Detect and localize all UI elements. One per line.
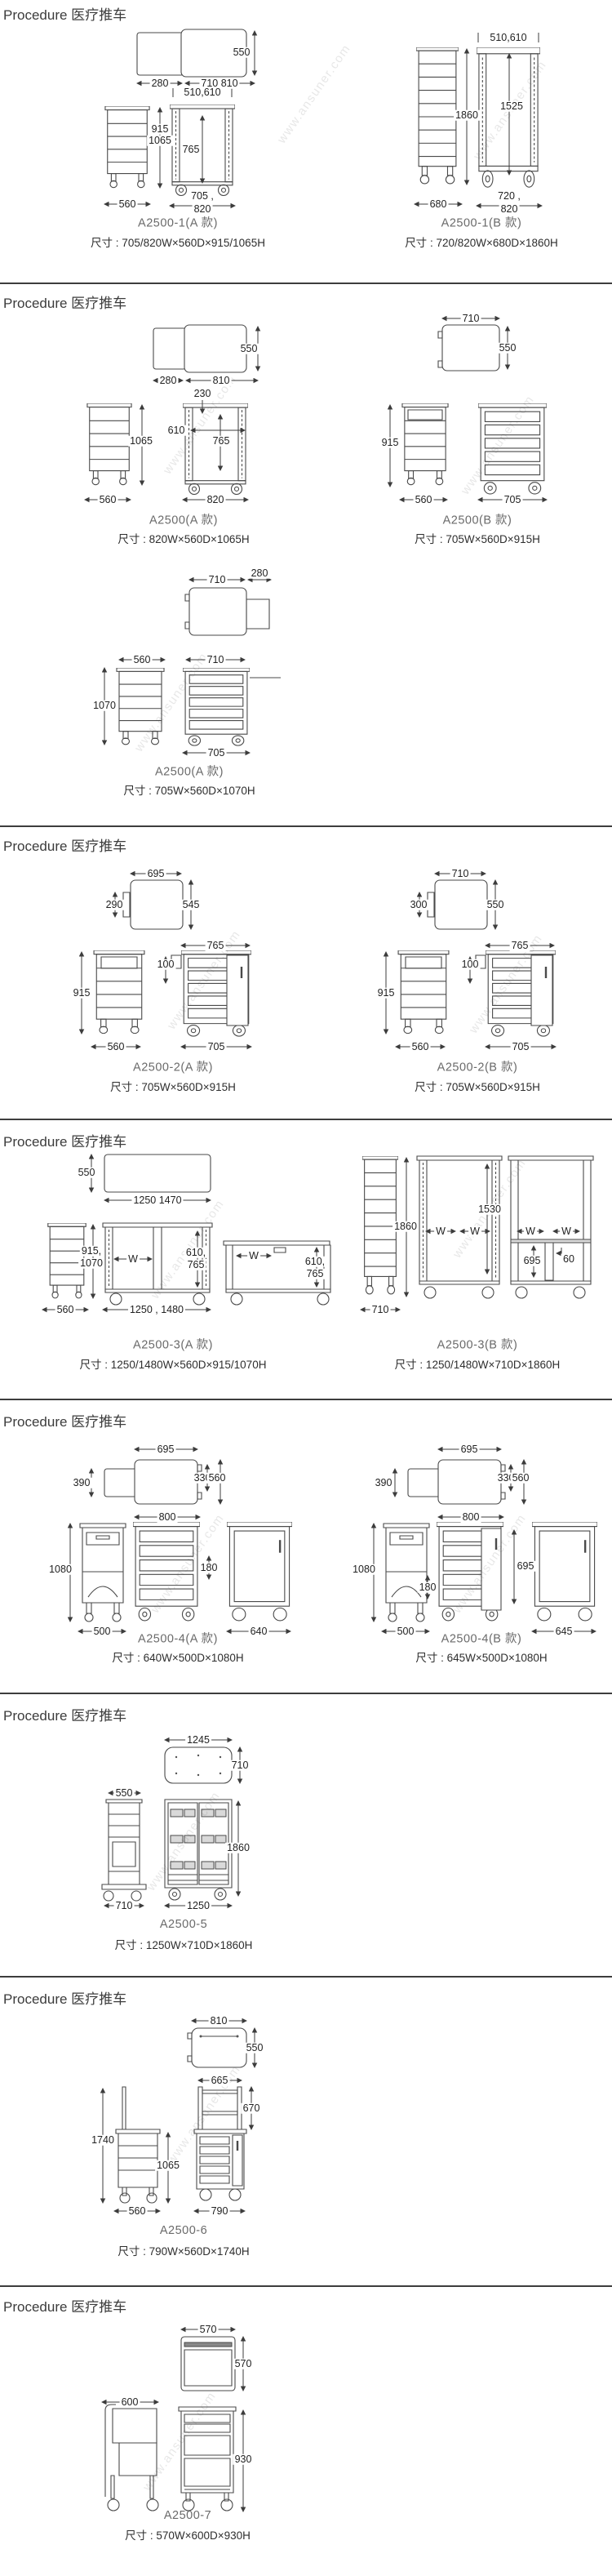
size-label: 尺寸 : 705W×560D×915H — [415, 530, 540, 546]
model-name: A2500-6 — [160, 2224, 207, 2237]
section-header: Procedure 医疗推车 — [3, 3, 126, 24]
dim-label: 560 — [98, 495, 118, 505]
dim-label: 570 — [198, 2325, 219, 2335]
figure-a2500-6 — [103, 2021, 255, 2211]
dim-label: 510,610 — [182, 87, 222, 98]
dim-label: W — [126, 1254, 140, 1265]
dim-label: 550 — [486, 900, 506, 910]
dim-label: 820 — [193, 204, 213, 215]
dim-label: 695 — [146, 869, 166, 879]
dim-label: 765 — [186, 1260, 206, 1270]
dim-label: 765 — [305, 1269, 326, 1279]
dim-label: 510,610 — [488, 33, 528, 43]
dim-label: 1250 , 1480 — [128, 1305, 185, 1315]
dim-label: 710 — [230, 1760, 251, 1771]
dim-label: 550 — [77, 1168, 97, 1178]
dim-label: 915 — [150, 124, 171, 135]
dim-label: 390 — [374, 1478, 394, 1488]
dim-label: 640 — [249, 1626, 269, 1637]
dim-label: W — [560, 1226, 573, 1237]
dim-label: 695 — [156, 1444, 176, 1455]
dim-label: 560 — [127, 2206, 148, 2217]
dim-label: 560 — [207, 1473, 228, 1484]
dim-label: 570 — [233, 2359, 254, 2369]
size-label: 尺寸 : 705/820W×560D×915/1065H — [91, 234, 265, 250]
section-header: Procedure 医疗推车 — [3, 291, 126, 312]
model-name: A2500-3(B 款) — [437, 1336, 518, 1353]
model-name: A2500-3(A 款) — [133, 1336, 213, 1353]
dim-label: W — [247, 1251, 260, 1261]
dim-label: 705 — [511, 1042, 531, 1052]
dim-label: 765 — [206, 941, 226, 951]
dim-label: 600 — [120, 2397, 140, 2408]
dim-label: 1530 — [477, 1204, 503, 1215]
dim-label: 810 — [209, 2016, 229, 2027]
size-label: 尺寸 : 705W×560D×915H — [110, 1078, 236, 1094]
model-name: A2500-2(A 款) — [133, 1058, 213, 1075]
dim-label: 705 — [503, 495, 523, 505]
dim-label: 1080 — [351, 1564, 377, 1575]
dim-label: 915 — [380, 438, 401, 448]
dim-label: 665 — [210, 2075, 230, 2086]
section-header: Procedure 医疗推车 — [3, 2295, 126, 2316]
dim-label: 610, — [304, 1257, 326, 1267]
size-label: 尺寸 : 705W×560D×915H — [415, 1078, 540, 1094]
model-name: A2500(B 款) — [443, 511, 512, 528]
dim-label: 710 — [370, 1305, 391, 1315]
model-name: A2500-4(A 款) — [138, 1630, 218, 1647]
size-label: 尺寸 : 705W×560D×1070H — [123, 781, 255, 798]
section-header: Procedure 医疗推车 — [3, 1130, 126, 1150]
dim-label: 560 — [55, 1305, 76, 1315]
size-label: 尺寸 : 1250/1480W×710D×1860H — [395, 1355, 561, 1372]
dim-label: 550 — [114, 1788, 135, 1799]
dim-label: 560 — [414, 495, 434, 505]
dim-label: 610 — [166, 425, 187, 436]
dim-label: 1080 — [47, 1564, 73, 1575]
dim-label: 705 — [206, 1042, 227, 1052]
dim-label: 1860 — [392, 1221, 419, 1232]
dim-label: 1065 — [147, 136, 173, 146]
model-name: A2500(A 款) — [155, 763, 224, 780]
dim-label: 915, — [80, 1246, 103, 1257]
dim-label: W — [468, 1226, 481, 1237]
dim-label: W — [434, 1226, 447, 1237]
dim-label: 280 — [158, 376, 179, 386]
model-name: A2500-4(B 款) — [441, 1630, 522, 1647]
dim-label: W — [524, 1226, 537, 1237]
dim-label: 710 — [461, 314, 481, 324]
dim-label: 710 — [206, 655, 226, 665]
dim-label: 695 — [516, 1561, 536, 1572]
dim-label: 100 — [156, 959, 176, 970]
dim-label: 1860 — [225, 1843, 251, 1853]
dim-label: 710 — [450, 869, 471, 879]
dim-label: 1525 — [499, 101, 525, 112]
dim-label: 915 — [376, 988, 397, 999]
size-label: 尺寸 : 1250/1480W×560D×915/1070H — [80, 1355, 267, 1372]
dim-label: 695 — [522, 1256, 543, 1266]
dim-label: 300 — [409, 900, 429, 910]
dim-label: 100 — [460, 959, 481, 970]
dim-label: 1070 — [91, 701, 118, 711]
dim-label: 800 — [461, 1512, 481, 1523]
dim-label: 930 — [233, 2454, 254, 2465]
section-divider — [0, 1976, 612, 1978]
section-header: Procedure 医疗推车 — [3, 1410, 126, 1430]
dim-label: 1065 — [155, 2160, 181, 2171]
line-art — [0, 0, 612, 2576]
dim-label: 500 — [92, 1626, 113, 1637]
section-divider — [0, 283, 612, 284]
dim-label: 1070 — [78, 1258, 104, 1269]
dim-label: 560 — [106, 1042, 126, 1052]
model-name: A2500-1(B 款) — [441, 214, 522, 231]
dim-label: 645 — [554, 1626, 574, 1637]
size-label: 尺寸 : 820W×560D×1065H — [118, 530, 249, 546]
dim-label: 1250 — [185, 1901, 211, 1911]
dim-label: 280 — [250, 568, 270, 579]
size-label: 尺寸 : 790W×560D×1740H — [118, 2242, 249, 2258]
figure-a2500-5 — [102, 1740, 240, 1906]
dim-label: 60 — [561, 1254, 576, 1265]
dim-label: 820 — [206, 495, 226, 505]
section-header: Procedure 医疗推车 — [3, 834, 126, 855]
section-divider — [0, 825, 612, 827]
dim-label: 710 — [114, 1901, 135, 1911]
model-name: A2500(A 款) — [149, 511, 218, 528]
model-name: A2500-2(B 款) — [437, 1058, 518, 1075]
section-divider — [0, 2285, 612, 2287]
dim-label: 500 — [396, 1626, 416, 1637]
section-header: Procedure 医疗推车 — [3, 1987, 126, 2008]
dim-label: 290 — [104, 900, 125, 910]
size-label: 尺寸 : 645W×500D×1080H — [415, 1648, 547, 1665]
size-label: 尺寸 : 1250W×710D×1860H — [115, 1936, 253, 1952]
dim-label: 230 — [193, 389, 213, 399]
section-divider — [0, 1119, 612, 1120]
dim-label: 800 — [157, 1512, 178, 1523]
dim-label: 1245 — [185, 1735, 211, 1746]
section-header: Procedure 医疗推车 — [3, 1704, 126, 1724]
catalog-page: www.ansuner.com www.ansuner.com www.ansu… — [0, 0, 612, 2576]
dim-label: 1065 — [128, 436, 154, 447]
dim-label: 550 — [239, 344, 259, 354]
dim-label: 670 — [242, 2103, 262, 2114]
dim-label: 550 — [232, 47, 252, 58]
dim-label: 560 — [511, 1473, 531, 1484]
dim-label: 720 , — [496, 191, 522, 202]
figure-a2500-4b — [374, 1449, 597, 1631]
dim-label: 180 — [199, 1563, 220, 1573]
dim-label: 1860 — [454, 110, 480, 121]
dim-label: 560 — [410, 1042, 431, 1052]
dim-label: 180 — [418, 1582, 438, 1593]
dim-label: 545 — [181, 900, 202, 910]
dim-label: 560 — [118, 199, 138, 210]
dim-label: 680 — [428, 199, 449, 210]
dim-label: 765 — [181, 145, 202, 155]
dim-label: 550 — [245, 2043, 265, 2053]
dim-label: 1250 1470 — [131, 1195, 183, 1206]
dim-label: 280 — [150, 78, 171, 89]
dim-label: 810 — [211, 376, 232, 386]
dim-label: 820 — [499, 204, 520, 215]
dim-label: 705 , — [189, 191, 215, 202]
model-name: A2500-1(A 款) — [138, 214, 218, 231]
dim-label: 765 — [211, 436, 232, 447]
figure-a2500-4a — [70, 1449, 292, 1631]
dim-label: 550 — [498, 343, 518, 354]
size-label: 尺寸 : 720/820W×680D×1860H — [405, 234, 558, 250]
size-label: 尺寸 : 570W×600D×930H — [125, 2526, 251, 2543]
dim-label: 610, — [184, 1248, 207, 1258]
dim-label: 695 — [459, 1444, 480, 1455]
model-name: A2500-5 — [160, 1918, 207, 1931]
dim-label: 1740 — [90, 2135, 116, 2146]
size-label: 尺寸 : 640W×500D×1080H — [112, 1648, 243, 1665]
dim-label: 705 — [206, 748, 227, 759]
dim-label: 710 — [207, 575, 228, 585]
dim-label: 915 — [72, 988, 92, 999]
dim-label: 790 — [210, 2206, 230, 2217]
section-divider — [0, 1693, 612, 1694]
dim-label: 390 — [72, 1478, 92, 1488]
dim-label: 560 — [132, 655, 153, 665]
model-name: A2500-7 — [164, 2509, 211, 2522]
figure-a2500-7 — [102, 2329, 243, 2511]
dim-label: 765 — [510, 941, 530, 951]
section-divider — [0, 1399, 612, 1400]
